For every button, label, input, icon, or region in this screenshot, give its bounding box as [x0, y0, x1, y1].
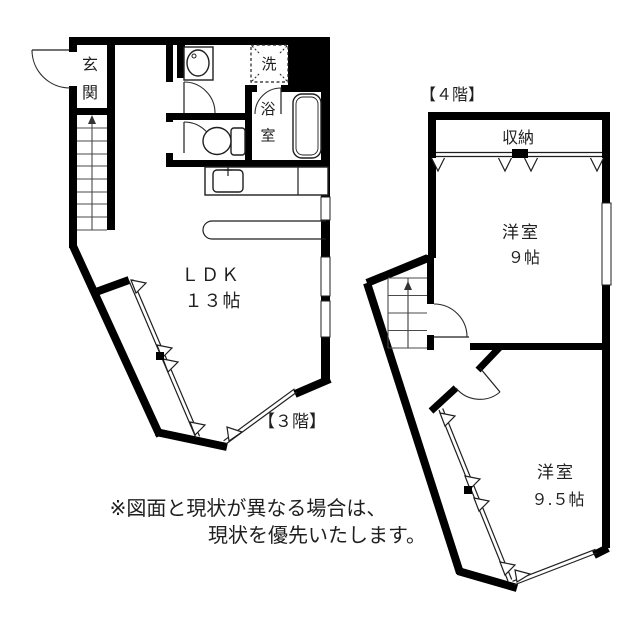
washer-label: 洗	[261, 55, 276, 73]
floor4-plan: 収納	[367, 85, 611, 588]
washbasin	[184, 47, 213, 80]
note-line-2: 現状を優先いたします。	[208, 523, 426, 547]
floor4-label: 【４階】	[420, 85, 484, 104]
stairs-up-arrow-3f	[88, 115, 96, 230]
staircase-4f	[388, 278, 427, 348]
bathroom: 浴室	[260, 94, 321, 158]
stairs-up-arrow-4f	[404, 281, 412, 348]
room95-label: 洋室	[537, 463, 575, 483]
washing-machine: 洗	[251, 45, 288, 82]
room95-size-label: ９.５帖	[531, 490, 584, 509]
room9-door	[434, 304, 469, 337]
kitchen-counter-bar	[203, 221, 326, 239]
floor-plan-page: 玄関	[0, 0, 640, 640]
bathroom-label: 浴室	[260, 100, 275, 144]
floor4-right-window	[602, 203, 611, 285]
floor4-inner-walls	[427, 255, 610, 411]
note-line-1: ※図面と現状が異なる場合は、	[110, 496, 387, 520]
storage-closet: 収納	[432, 128, 604, 171]
floor3-label: 【３階】	[258, 412, 326, 432]
room9-size-label: ９帖	[508, 248, 540, 267]
floor-plan-drawing: 玄関	[0, 0, 640, 640]
entrance-label: 玄関	[82, 55, 98, 102]
dead-space	[288, 37, 330, 92]
entrance-door	[32, 50, 70, 88]
kitchen	[203, 167, 328, 239]
room95-door	[456, 368, 500, 399]
room9-label: 洋室	[502, 223, 540, 243]
toilet	[203, 128, 245, 156]
ldk-size-label: １３帖	[185, 291, 242, 312]
floor3-right-windows	[321, 197, 330, 337]
washroom-door	[184, 82, 215, 113]
staircase-3f	[77, 115, 115, 230]
storage-label: 収納	[502, 128, 534, 147]
disclaimer-note: ※図面と現状が異なる場合は、 現状を優先いたします。	[110, 496, 426, 547]
ldk-label: ＬＤＫ	[181, 265, 241, 286]
floor4-bottom-window	[513, 549, 598, 585]
floor3-plan: 玄関	[32, 37, 330, 447]
